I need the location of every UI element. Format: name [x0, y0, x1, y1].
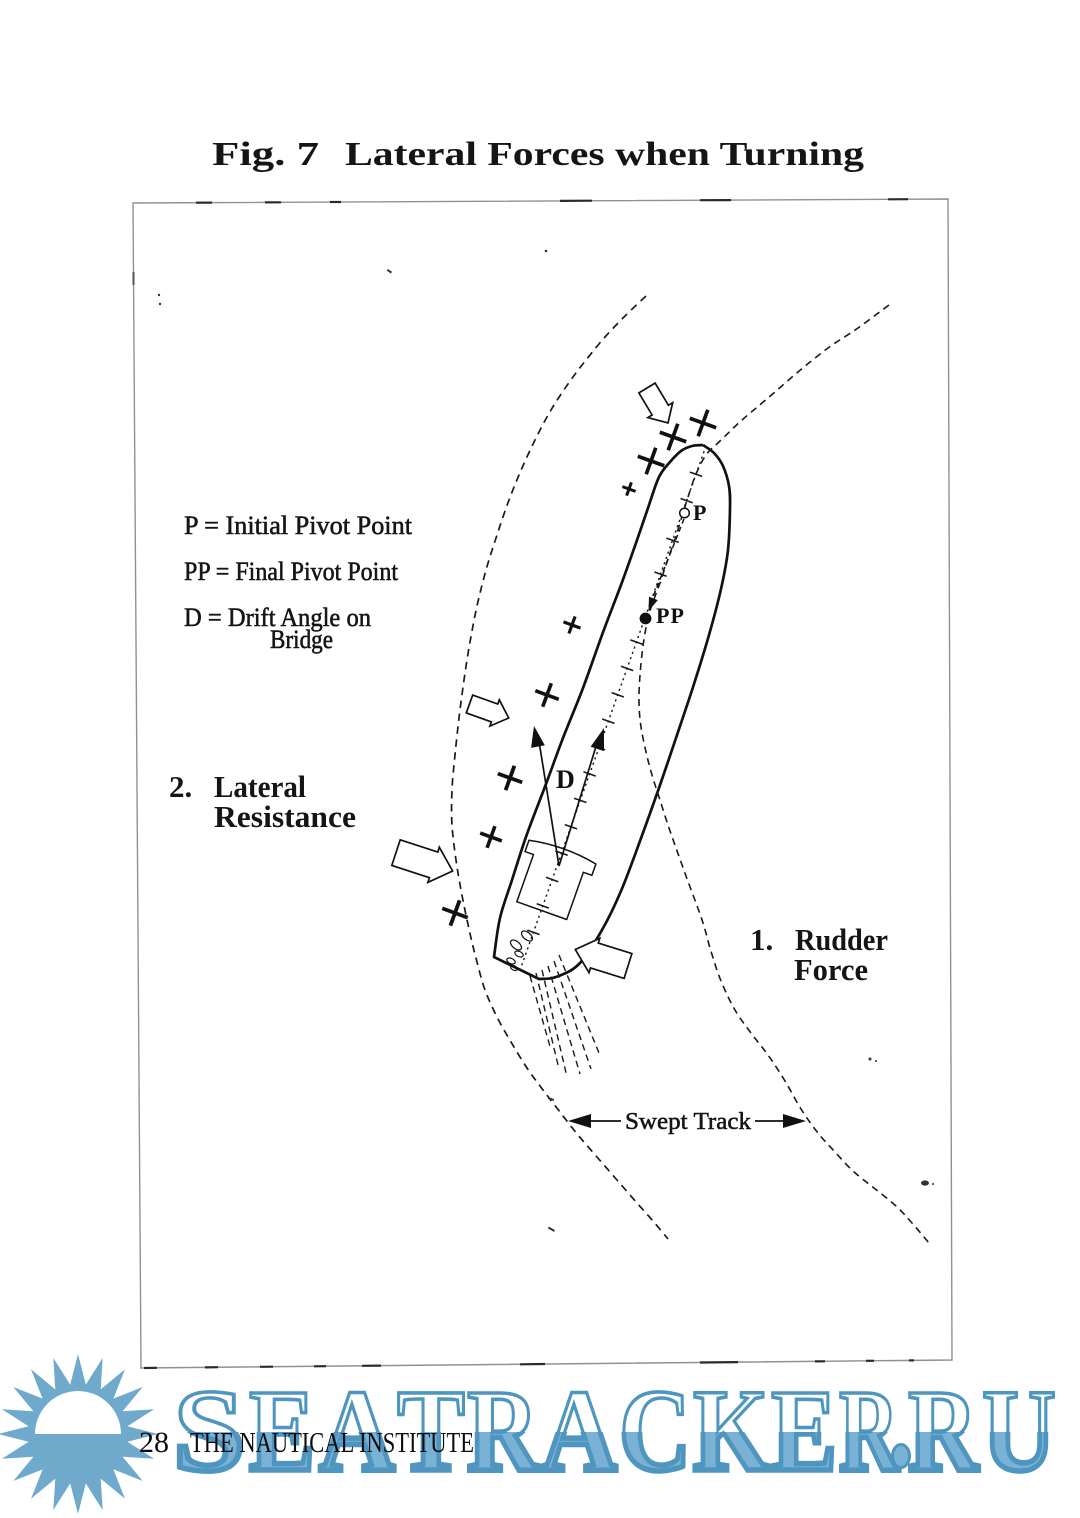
svg-text:THE NAUTICAL INSTITUTE: THE NAUTICAL INSTITUTE — [190, 1428, 474, 1459]
svg-text:Swept Track: Swept Track — [625, 1109, 751, 1135]
svg-text:Force: Force — [794, 952, 868, 987]
svg-text:D: D — [556, 765, 575, 794]
svg-text:Lateral Forces when Turning: Lateral Forces when Turning — [345, 136, 864, 173]
svg-text:1.: 1. — [750, 922, 773, 957]
svg-text:28: 28 — [139, 1426, 169, 1459]
svg-text:Bridge: Bridge — [270, 625, 333, 654]
svg-text:P = Initial Pivot Point: P = Initial Pivot Point — [184, 511, 413, 540]
svg-text:PP: PP — [656, 603, 684, 628]
svg-text:Fig. 7: Fig. 7 — [212, 136, 319, 173]
svg-text:PP = Final Pivot Point: PP = Final Pivot Point — [184, 557, 399, 586]
svg-text:2.: 2. — [169, 769, 192, 804]
svg-text:P: P — [693, 500, 706, 525]
svg-text:Resistance: Resistance — [214, 799, 356, 834]
